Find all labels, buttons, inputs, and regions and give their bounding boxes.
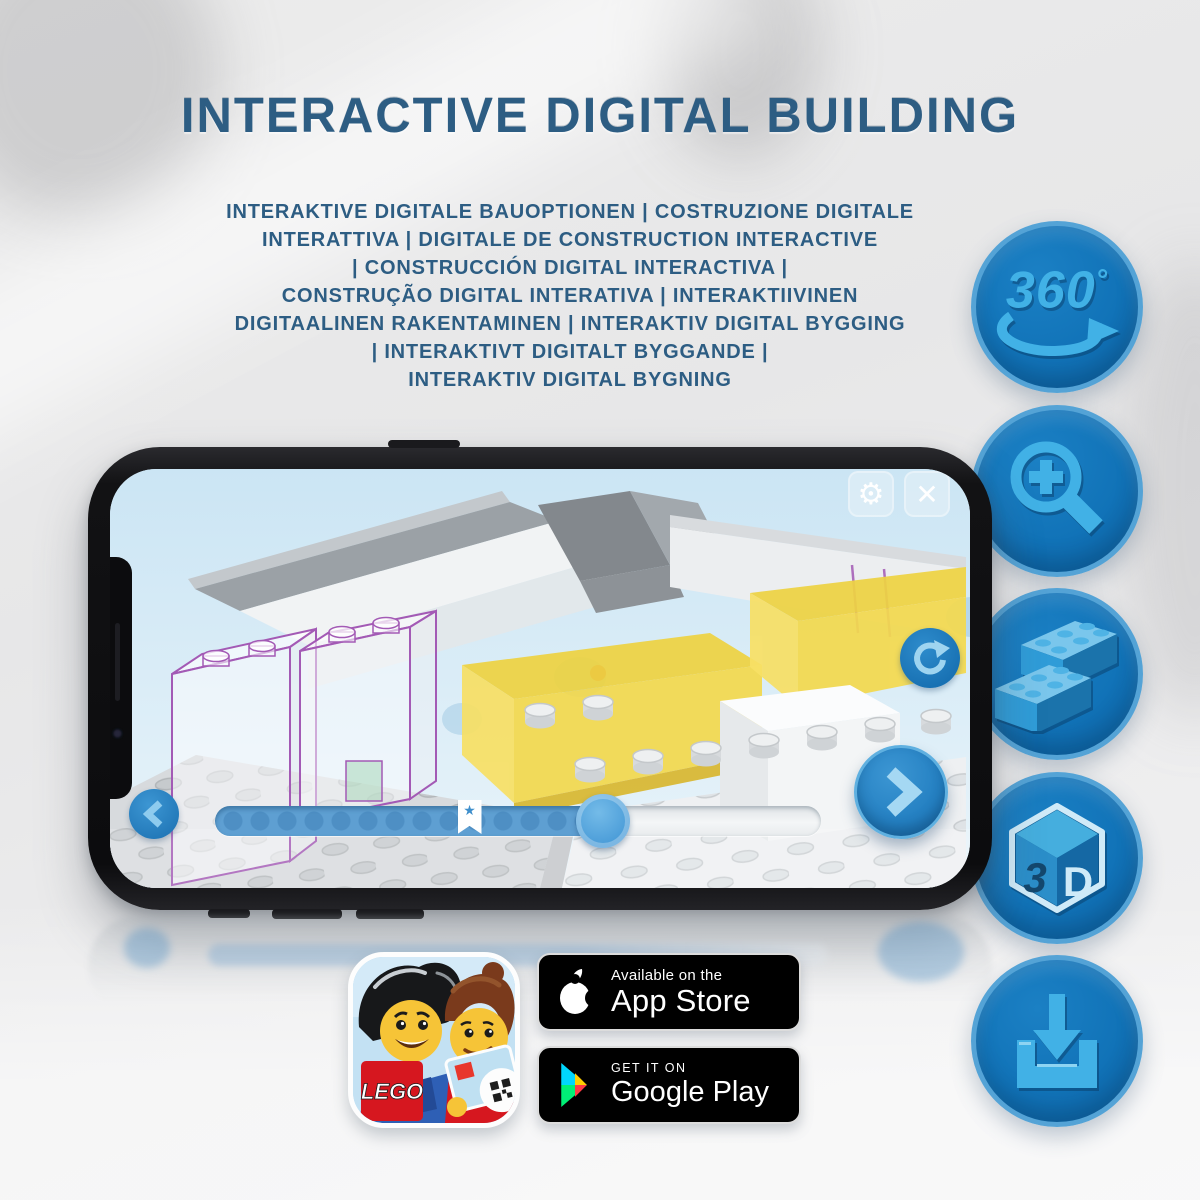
feature-3d-view: 3 D [971,772,1143,944]
subtitle-line: INTERAKTIVE DIGITALE BAUOPTIONEN | COSTR… [110,198,1030,226]
phone-side-button [388,440,460,448]
gear-icon: ⚙ [858,477,885,512]
earpiece-speaker [115,623,120,701]
360-rotation-icon: 360° [1006,258,1108,312]
360-arrow-icon [993,312,1121,356]
zoom-in-icon [998,432,1116,550]
brick-stacking-icon [995,617,1119,731]
svg-text:D: D [1063,858,1093,905]
feature-zoom-in [971,405,1143,577]
previous-step-button[interactable] [129,789,179,839]
build-progress-slider[interactable]: ★ [215,806,821,836]
phone-notch [110,557,132,799]
rotate-view-button[interactable] [900,628,960,688]
subtitle-line: INTERATTIVA | DIGITALE DE CONSTRUCTION I… [110,226,1030,254]
lego-logo: LEGO [361,1079,423,1104]
close-icon: ✕ [915,478,938,511]
rotate-icon [910,638,950,678]
phone-mockup: ⚙ ✕ [88,447,992,910]
settings-button[interactable]: ⚙ [848,471,894,517]
marketing-image: INTERACTIVE DIGITAL BUILDING INTERAKTIVE… [0,0,1200,1200]
google-play-name: Google Play [611,1076,769,1109]
apple-logo-icon [539,968,611,1016]
phone-screen: ⚙ ✕ [110,469,970,888]
app-store-badge[interactable]: Available on the App Store [537,953,801,1031]
lego-app-icon[interactable]: LEGO [348,952,520,1128]
chevron-right-icon [879,766,923,818]
close-button[interactable]: ✕ [904,471,950,517]
subtitle-line: DIGITAALINEN RAKENTAMINEN | INTERAKTIV D… [110,310,1030,338]
star-icon: ★ [463,800,476,822]
svg-text:3: 3 [1023,854,1046,901]
slider-thumb[interactable] [576,794,630,848]
google-play-logo-icon [539,1063,611,1107]
subtitle-line: CONSTRUÇÃO DIGITAL INTERATIVA | INTERAKT… [110,282,1030,310]
feature-360-rotation: 360° [971,221,1143,393]
chevron-left-icon [141,799,167,829]
multilingual-subtitle: INTERAKTIVE DIGITALE BAUOPTIONEN | COSTR… [110,198,1030,394]
download-icon [1001,986,1113,1096]
app-store-name: App Store [611,984,751,1018]
app-store-tagline: Available on the [611,967,751,984]
page-title: INTERACTIVE DIGITAL BUILDING [0,88,1200,144]
feature-brick-stacking [971,588,1143,760]
feature-download [971,955,1143,1127]
google-play-badge[interactable]: GET IT ON Google Play [537,1046,801,1124]
subtitle-line: | CONSTRUCCIÓN DIGITAL INTERACTIVA | [110,254,1030,282]
google-play-tagline: GET IT ON [611,1061,769,1076]
subtitle-line: INTERAKTIV DIGITAL BYGNING [110,366,1030,394]
progress-fill [215,806,603,836]
next-step-button[interactable] [854,745,948,839]
lego-app-icon-art: LEGO [353,957,515,1123]
subtitle-line: | INTERAKTIVT DIGITALT BYGGANDE | [110,338,1030,366]
front-camera [113,729,122,738]
3d-view-icon: 3 D [997,798,1117,918]
